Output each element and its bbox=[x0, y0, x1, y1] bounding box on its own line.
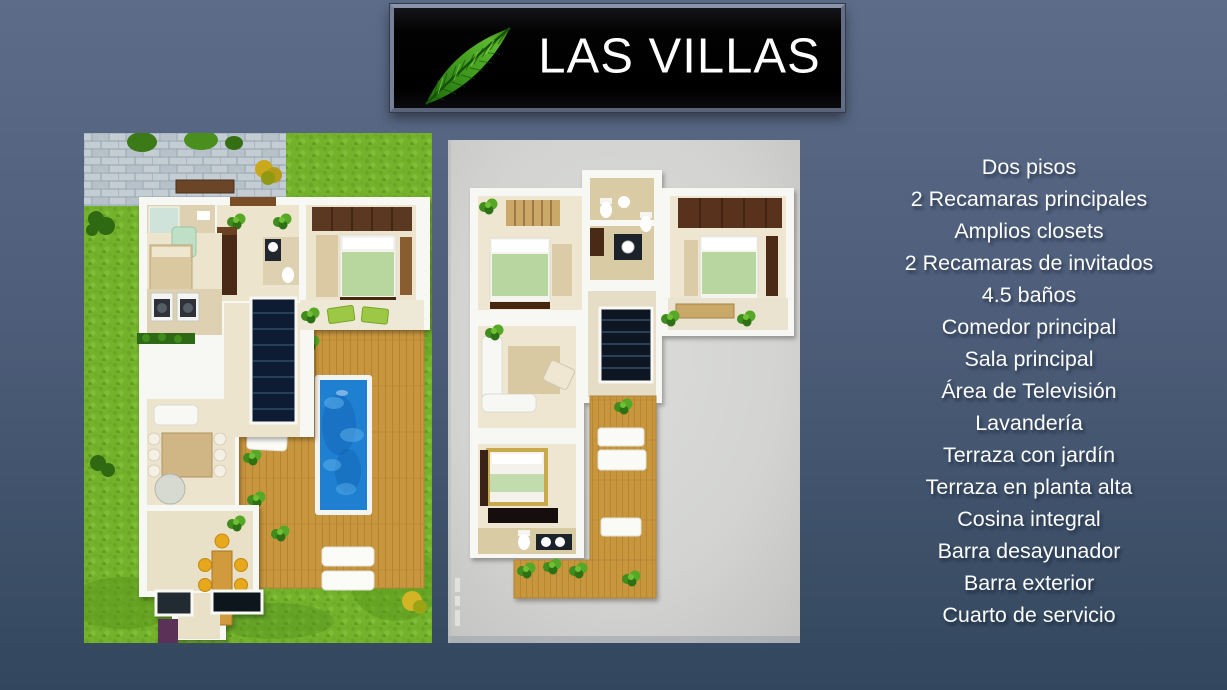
feature-item: Comedor principal bbox=[843, 311, 1215, 343]
feature-item: 2 Recamaras principales bbox=[843, 183, 1215, 215]
feature-item: Barra exterior bbox=[843, 567, 1215, 599]
feature-item: Cosina integral bbox=[843, 503, 1215, 535]
feature-item: Amplios closets bbox=[843, 215, 1215, 247]
upper-balcony bbox=[661, 298, 788, 330]
feature-item: Terraza con jardín bbox=[843, 439, 1215, 471]
palm-leaf-icon bbox=[416, 16, 524, 108]
bedroom-principal-2 bbox=[670, 196, 786, 306]
balcony bbox=[300, 300, 424, 330]
watermark bbox=[455, 578, 460, 626]
upper-floor-plan-svg bbox=[448, 140, 800, 643]
bedroom-principal-1 bbox=[478, 196, 582, 310]
driveway bbox=[84, 133, 286, 206]
feature-item: 2 Recamaras de invitados bbox=[843, 247, 1215, 279]
feature-item: Sala principal bbox=[843, 343, 1215, 375]
shadow-patch bbox=[158, 619, 178, 643]
window bbox=[212, 591, 262, 613]
title-banner: LAS VILLAS bbox=[390, 4, 845, 112]
presentation-slide: LAS VILLAS bbox=[0, 0, 1227, 690]
bathrooms bbox=[590, 178, 654, 280]
upper-floor-plan bbox=[448, 140, 800, 643]
wardrobe bbox=[312, 207, 412, 231]
bed bbox=[480, 448, 548, 506]
stairwell bbox=[588, 291, 656, 397]
vanity bbox=[488, 508, 558, 523]
feature-list: Dos pisos 2 Recamaras principales Amplio… bbox=[843, 151, 1215, 631]
stairwell bbox=[251, 298, 296, 423]
bed bbox=[490, 238, 550, 309]
feature-item: Dos pisos bbox=[843, 151, 1215, 183]
slide-title: LAS VILLAS bbox=[532, 28, 827, 84]
sofa bbox=[154, 405, 198, 425]
bed bbox=[700, 236, 758, 305]
master-bedroom bbox=[306, 205, 416, 304]
ground-floor-plan bbox=[84, 133, 432, 643]
feature-item: 4.5 baños bbox=[843, 279, 1215, 311]
round-table bbox=[155, 474, 185, 504]
swimming-pool bbox=[315, 375, 372, 515]
feature-item: Lavandería bbox=[843, 407, 1215, 439]
bed bbox=[340, 235, 396, 304]
service-door bbox=[156, 591, 192, 615]
feature-item: Área de Televisión bbox=[843, 375, 1215, 407]
ground-floor-plan-svg bbox=[84, 133, 432, 643]
half-bath bbox=[263, 237, 299, 285]
feature-item: Terraza en planta alta bbox=[843, 471, 1215, 503]
tv-area bbox=[478, 325, 576, 429]
bedroom-guest bbox=[478, 444, 576, 554]
bench bbox=[676, 304, 734, 318]
gate-plank bbox=[176, 180, 234, 193]
feature-item: Cuarto de servicio bbox=[843, 599, 1215, 631]
dining-table bbox=[162, 433, 212, 477]
feature-item: Barra desayunador bbox=[843, 535, 1215, 567]
dining-area bbox=[147, 399, 235, 505]
